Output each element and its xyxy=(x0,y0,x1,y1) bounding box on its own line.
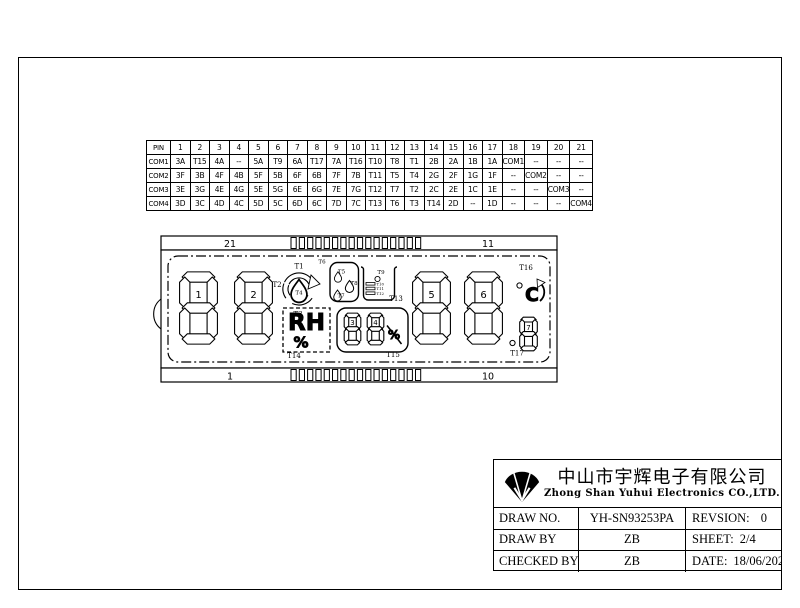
level-bar-icon xyxy=(366,287,375,290)
pin-cell: 6E xyxy=(288,183,308,197)
pin-cell: 4G xyxy=(229,183,249,197)
connector-pad xyxy=(341,370,346,381)
title-block-row-drawno: DRAW NO. YH-SN93253PA REVSION: 0 xyxy=(494,507,781,529)
connector-pad xyxy=(357,370,362,381)
tag-t15: T15 xyxy=(386,351,400,359)
rh-text: RH xyxy=(288,310,325,336)
pin-mark-1: 1 xyxy=(227,372,233,383)
pin-cell: 2F xyxy=(444,169,464,183)
pin-cell: 15 xyxy=(444,141,464,155)
digit-3: 3 xyxy=(344,313,361,345)
tag-t8: T8 xyxy=(350,281,358,287)
pin-cell: 7E xyxy=(327,183,347,197)
title-block-row-drawby: DRAW BY ZB SHEET: 2/4 xyxy=(494,529,781,551)
connector-pad xyxy=(291,238,296,249)
pin-mark-21: 21 xyxy=(224,239,236,250)
connector-pad xyxy=(333,370,338,381)
pin-cell: COM2 xyxy=(525,169,548,183)
company-logo-icon xyxy=(501,464,543,504)
pin-table-row: COM13AT154A--5AT96AT177AT16T10T8T12B2A1B… xyxy=(147,155,593,169)
pin-cell: 4F xyxy=(210,169,230,183)
digit-4-label: 4 xyxy=(373,319,378,327)
pin-cell: 2D xyxy=(444,197,464,211)
pin-cell: T2 xyxy=(405,183,425,197)
connector-pad xyxy=(333,238,338,249)
pin-cell: 1E xyxy=(483,183,503,197)
pin-cell: T12 xyxy=(366,183,386,197)
pin-cell: -- xyxy=(570,183,593,197)
pin-cell: T11 xyxy=(366,169,386,183)
pin-cell: 1F xyxy=(483,169,503,183)
pin-cell: COM4 xyxy=(570,197,593,211)
pin-cell: 4D xyxy=(210,197,230,211)
pin-cell: T7 xyxy=(385,183,405,197)
pin-cell: -- xyxy=(502,169,525,183)
pin-cell: COM1 xyxy=(502,155,525,169)
pin-table-row: COM33E3G4E4G5E5G6E6G7E7GT12T7T22C2E1C1E-… xyxy=(147,183,593,197)
pin-cell: 2G xyxy=(424,169,444,183)
connector-pad xyxy=(374,238,379,249)
draw-by-label: DRAW BY xyxy=(494,530,579,551)
connector-pad xyxy=(357,238,362,249)
level-bar-icon xyxy=(366,283,375,286)
connector-pad xyxy=(416,370,421,381)
pin-cell: -- xyxy=(547,169,570,183)
connector-pad xyxy=(324,238,329,249)
pin-row-label: COM1 xyxy=(147,155,171,169)
digit-2-label: 2 xyxy=(250,290,256,301)
connector-pad xyxy=(407,370,412,381)
pin-cell: 7D xyxy=(327,197,347,211)
pin-cell: 5A xyxy=(249,155,269,169)
pin-cell: T13 xyxy=(366,197,386,211)
pin-cell: 6G xyxy=(307,183,327,197)
pin-cell: 5B xyxy=(268,169,288,183)
date-label: DATE: xyxy=(692,554,727,569)
pin-cell: 2A xyxy=(444,155,464,169)
pin-cell: 3B xyxy=(190,169,210,183)
pin-cell: 19 xyxy=(525,141,548,155)
pin-cell: 5 xyxy=(249,141,269,155)
connector-pad xyxy=(349,370,354,381)
pin-cell: 7F xyxy=(327,169,347,183)
date-value: 18/06/2021 xyxy=(733,554,781,569)
pin-cell: 3E xyxy=(171,183,191,197)
tag-t2: T2 xyxy=(272,281,281,289)
tag-t9: T9 xyxy=(377,270,385,276)
draw-by-value: ZB xyxy=(579,530,686,551)
pin-cell: 5C xyxy=(268,197,288,211)
pin-cell: -- xyxy=(570,155,593,169)
pin-cell: 4 xyxy=(229,141,249,155)
pin-cell: 8 xyxy=(307,141,327,155)
revision-label: REVSION: xyxy=(692,511,750,526)
pin-cell: 16 xyxy=(463,141,483,155)
rh-percent-box: RH % T14 xyxy=(283,308,330,360)
pin-cell: 1B xyxy=(463,155,483,169)
connector-pad xyxy=(382,370,387,381)
pin-cell: 3D xyxy=(171,197,191,211)
digit-7-label: 7 xyxy=(526,324,530,332)
pin-cell: 2E xyxy=(444,183,464,197)
pin-cell: T9 xyxy=(268,155,288,169)
pin-cell: T3 xyxy=(405,197,425,211)
pin-cell: 7 xyxy=(288,141,308,155)
pin-cell: 3 xyxy=(210,141,230,155)
pin-cell: 2 xyxy=(190,141,210,155)
pin-cell: T8 xyxy=(385,155,405,169)
connector-pad xyxy=(316,238,321,249)
sheet-value: 2/4 xyxy=(740,532,756,547)
pin-cell: T1 xyxy=(405,155,425,169)
pin-cell: 6D xyxy=(288,197,308,211)
pin-cell: 4C xyxy=(229,197,249,211)
pin-cell: 7B xyxy=(346,169,366,183)
pin-cell: 6C xyxy=(307,197,327,211)
tag-t1: T1 xyxy=(294,263,303,271)
pin-cell: T5 xyxy=(385,169,405,183)
pin-cell: 1C xyxy=(463,183,483,197)
pin-cell: 2C xyxy=(424,183,444,197)
pin-cell: 6B xyxy=(307,169,327,183)
pin-cell: 14 xyxy=(424,141,444,155)
connector-pad xyxy=(391,238,396,249)
pin-cell: T15 xyxy=(190,155,210,169)
digit-7: 7 xyxy=(520,317,538,351)
pin-cell: 7C xyxy=(346,197,366,211)
pin-cell: 1A xyxy=(483,155,503,169)
tag-t13: T13 xyxy=(389,295,403,303)
pin-cell: -- xyxy=(502,183,525,197)
connector-pad xyxy=(299,370,304,381)
pin-table-row: COM23F3B4F4B5F5B6F6B7F7BT11T5T42G2F1G1F-… xyxy=(147,169,593,183)
connector-pad xyxy=(308,370,313,381)
pin-mark-10: 10 xyxy=(482,372,494,383)
pin-cell: 5G xyxy=(268,183,288,197)
level-bar-icon xyxy=(366,292,375,295)
pin-cell: T6 xyxy=(385,197,405,211)
pin-cell: 7A xyxy=(327,155,347,169)
digit-4: 4 xyxy=(367,313,384,345)
pin-cell: 9 xyxy=(327,141,347,155)
pin-cell: 3A xyxy=(171,155,191,169)
connector-pad xyxy=(316,370,321,381)
percent-text: % xyxy=(293,334,308,352)
pin-row-label: COM2 xyxy=(147,169,171,183)
pin-row-label: COM3 xyxy=(147,183,171,197)
tag-t5: T5 xyxy=(338,270,346,276)
sheet-label: SHEET: xyxy=(692,532,734,547)
pin-cell: 3F xyxy=(171,169,191,183)
tag-t6: T6 xyxy=(318,260,326,266)
pin-cell: 18 xyxy=(502,141,525,155)
checked-by-value: ZB xyxy=(579,551,686,572)
company-name-cn: 中山市宇辉电子有限公司 xyxy=(543,468,781,488)
pin-cell: -- xyxy=(502,197,525,211)
tag-t7: T7 xyxy=(337,294,345,300)
connector-pad xyxy=(416,238,421,249)
pin-table: PIN123456789101112131415161718192021COM1… xyxy=(146,140,593,211)
pin-cell: -- xyxy=(547,155,570,169)
digit-1-label: 1 xyxy=(195,290,201,301)
pin-cell: 7G xyxy=(346,183,366,197)
pin-table-header-row: PIN123456789101112131415161718192021 xyxy=(147,141,593,155)
pin-cell: 3G xyxy=(190,183,210,197)
pin-cell: 5E xyxy=(249,183,269,197)
pin-cell: 4E xyxy=(210,183,230,197)
connector-pad xyxy=(349,238,354,249)
connector-pad xyxy=(391,370,396,381)
pin-cell: 6F xyxy=(288,169,308,183)
celsius-text: C xyxy=(525,284,539,306)
connector-pad xyxy=(407,238,412,249)
digit-2: 2 xyxy=(235,272,273,344)
pin-cell: 1D xyxy=(483,197,503,211)
digit-5-label: 5 xyxy=(428,290,434,301)
pin-cell: -- xyxy=(463,197,483,211)
connector-pad xyxy=(366,238,371,249)
connector-pad xyxy=(382,238,387,249)
pin-cell: -- xyxy=(525,197,548,211)
checked-by-label: CHECKED BY xyxy=(494,551,579,572)
tag-t14: T14 xyxy=(287,352,301,360)
connector-pad xyxy=(399,370,404,381)
pin-cell: -- xyxy=(547,197,570,211)
connector-pad xyxy=(366,370,371,381)
lcd-drawing: 21 11 1 10 1 2 5 6 xyxy=(160,234,558,384)
pin-cell: T16 xyxy=(346,155,366,169)
pin-cell: 5D xyxy=(249,197,269,211)
pin-cell: 1 xyxy=(171,141,191,155)
digit-3-label: 3 xyxy=(350,319,354,327)
digit-6-label: 6 xyxy=(480,290,486,301)
pin-cell: 13 xyxy=(405,141,425,155)
pin-cell: -- xyxy=(229,155,249,169)
connector-pad xyxy=(299,238,304,249)
tag-t4: T4 xyxy=(295,291,303,297)
pin-row-label: COM4 xyxy=(147,197,171,211)
pin-cell: 17 xyxy=(483,141,503,155)
pin-cell: 20 xyxy=(547,141,570,155)
digit-1: 1 xyxy=(180,272,218,344)
connector-pad xyxy=(308,238,313,249)
title-block-row-checkedby: CHECKED BY ZB DATE: 18/06/2021 xyxy=(494,550,781,572)
revision-value: 0 xyxy=(761,511,767,526)
pin-table-row: COM43D3C4D4C5D5C6D6C7D7CT13T6T3T142D--1D… xyxy=(147,197,593,211)
pin-cell: T17 xyxy=(307,155,327,169)
pin-cell: 12 xyxy=(385,141,405,155)
drawing-sheet-page: PIN123456789101112131415161718192021COM1… xyxy=(0,0,800,608)
pin-cell: 21 xyxy=(570,141,593,155)
pin-cell: COM3 xyxy=(547,183,570,197)
tag-t16: T16 xyxy=(519,264,533,272)
pin-cell: 5F xyxy=(249,169,269,183)
pin-row-label: PIN xyxy=(147,141,171,155)
draw-no-label: DRAW NO. xyxy=(494,508,579,529)
pin-cell: -- xyxy=(525,155,548,169)
company-name-en: Zhong Shan Yuhui Electronics CO.,LTD. xyxy=(543,488,781,499)
pin-cell: 3C xyxy=(190,197,210,211)
pin-cell: -- xyxy=(570,169,593,183)
title-block: 中山市宇辉电子有限公司 Zhong Shan Yuhui Electronics… xyxy=(493,459,782,571)
pin-cell: T10 xyxy=(366,155,386,169)
connector-pad xyxy=(399,238,404,249)
pin-cell: T4 xyxy=(405,169,425,183)
connector-pad xyxy=(291,370,296,381)
draw-no-value: YH-SN93253PA xyxy=(579,508,686,529)
pin-cell: 6A xyxy=(288,155,308,169)
tag-t12: T12 xyxy=(377,291,385,296)
pin-cell: 1G xyxy=(463,169,483,183)
digit-6: 6 xyxy=(465,272,503,344)
percent-off-icon: % xyxy=(387,326,402,345)
pin-cell: 6 xyxy=(268,141,288,155)
pin-cell: 2B xyxy=(424,155,444,169)
digit-5: 5 xyxy=(413,272,451,344)
tag-t17: T17 xyxy=(510,350,524,358)
pin-cell: T14 xyxy=(424,197,444,211)
pin-cell: -- xyxy=(525,183,548,197)
pin-cell: 11 xyxy=(366,141,386,155)
company-header: 中山市宇辉电子有限公司 Zhong Shan Yuhui Electronics… xyxy=(494,460,781,507)
connector-pad xyxy=(341,238,346,249)
connector-pad xyxy=(324,370,329,381)
pin-cell: 10 xyxy=(346,141,366,155)
pin-mark-11: 11 xyxy=(482,239,494,250)
pin-cell: 4B xyxy=(229,169,249,183)
connector-pad xyxy=(374,370,379,381)
pin-cell: 4A xyxy=(210,155,230,169)
